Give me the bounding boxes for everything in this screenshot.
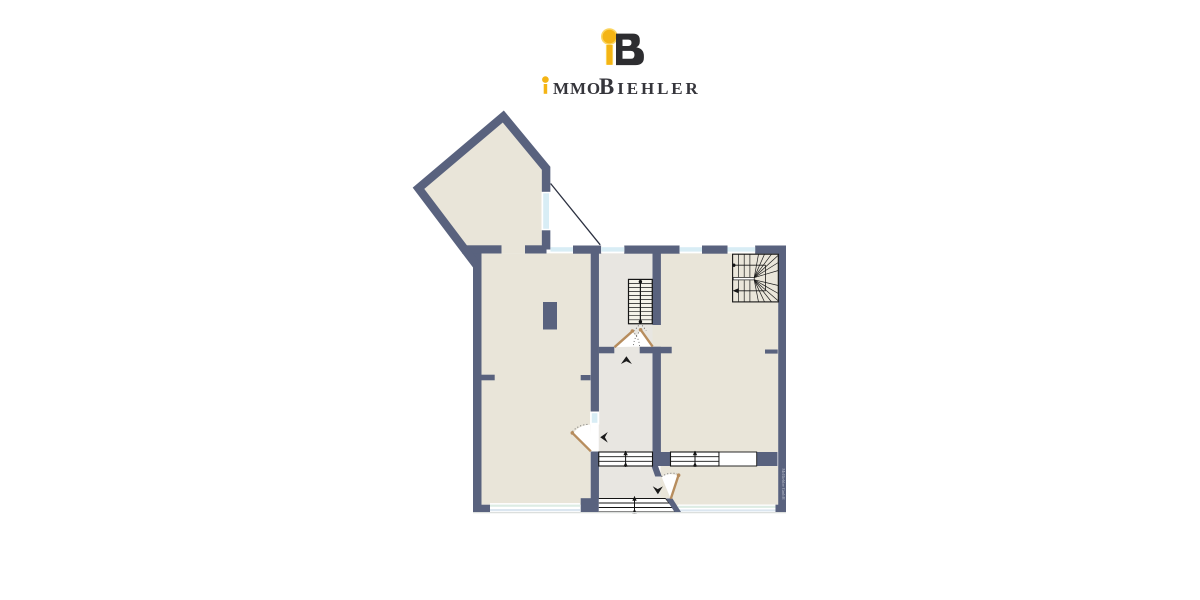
svg-text:McBiehler GmbH: McBiehler GmbH: [781, 468, 786, 499]
svg-text:B: B: [599, 74, 614, 99]
svg-text:MMO: MMO: [553, 79, 601, 98]
svg-text:IEHLER: IEHLER: [617, 79, 701, 98]
